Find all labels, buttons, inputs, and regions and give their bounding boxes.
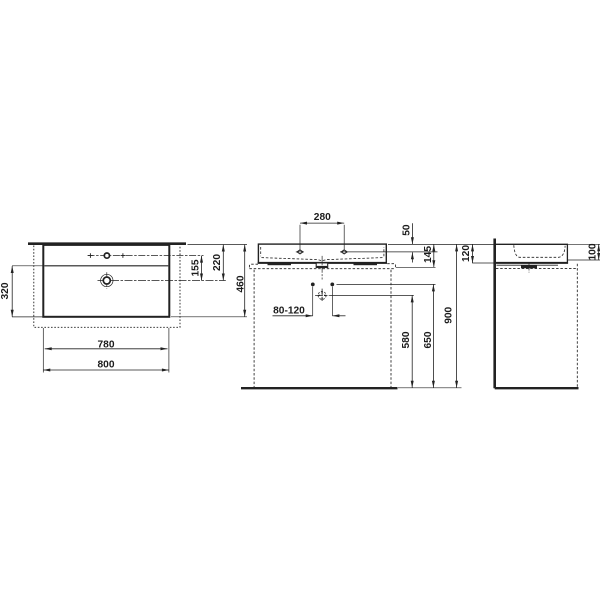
svg-text:50: 50 <box>402 224 413 236</box>
svg-text:900: 900 <box>444 306 455 323</box>
svg-text:580: 580 <box>401 331 412 348</box>
svg-text:100: 100 <box>588 243 599 260</box>
svg-text:800: 800 <box>98 360 115 371</box>
svg-text:280: 280 <box>314 212 331 223</box>
svg-text:320: 320 <box>0 282 11 299</box>
svg-text:80-120: 80-120 <box>273 306 305 317</box>
svg-text:155: 155 <box>191 259 202 276</box>
svg-text:220: 220 <box>212 254 223 271</box>
svg-text:120: 120 <box>461 245 472 262</box>
svg-text:650: 650 <box>423 331 434 348</box>
svg-text:780: 780 <box>98 339 115 350</box>
svg-text:460: 460 <box>236 275 247 292</box>
svg-text:145: 145 <box>423 246 434 263</box>
